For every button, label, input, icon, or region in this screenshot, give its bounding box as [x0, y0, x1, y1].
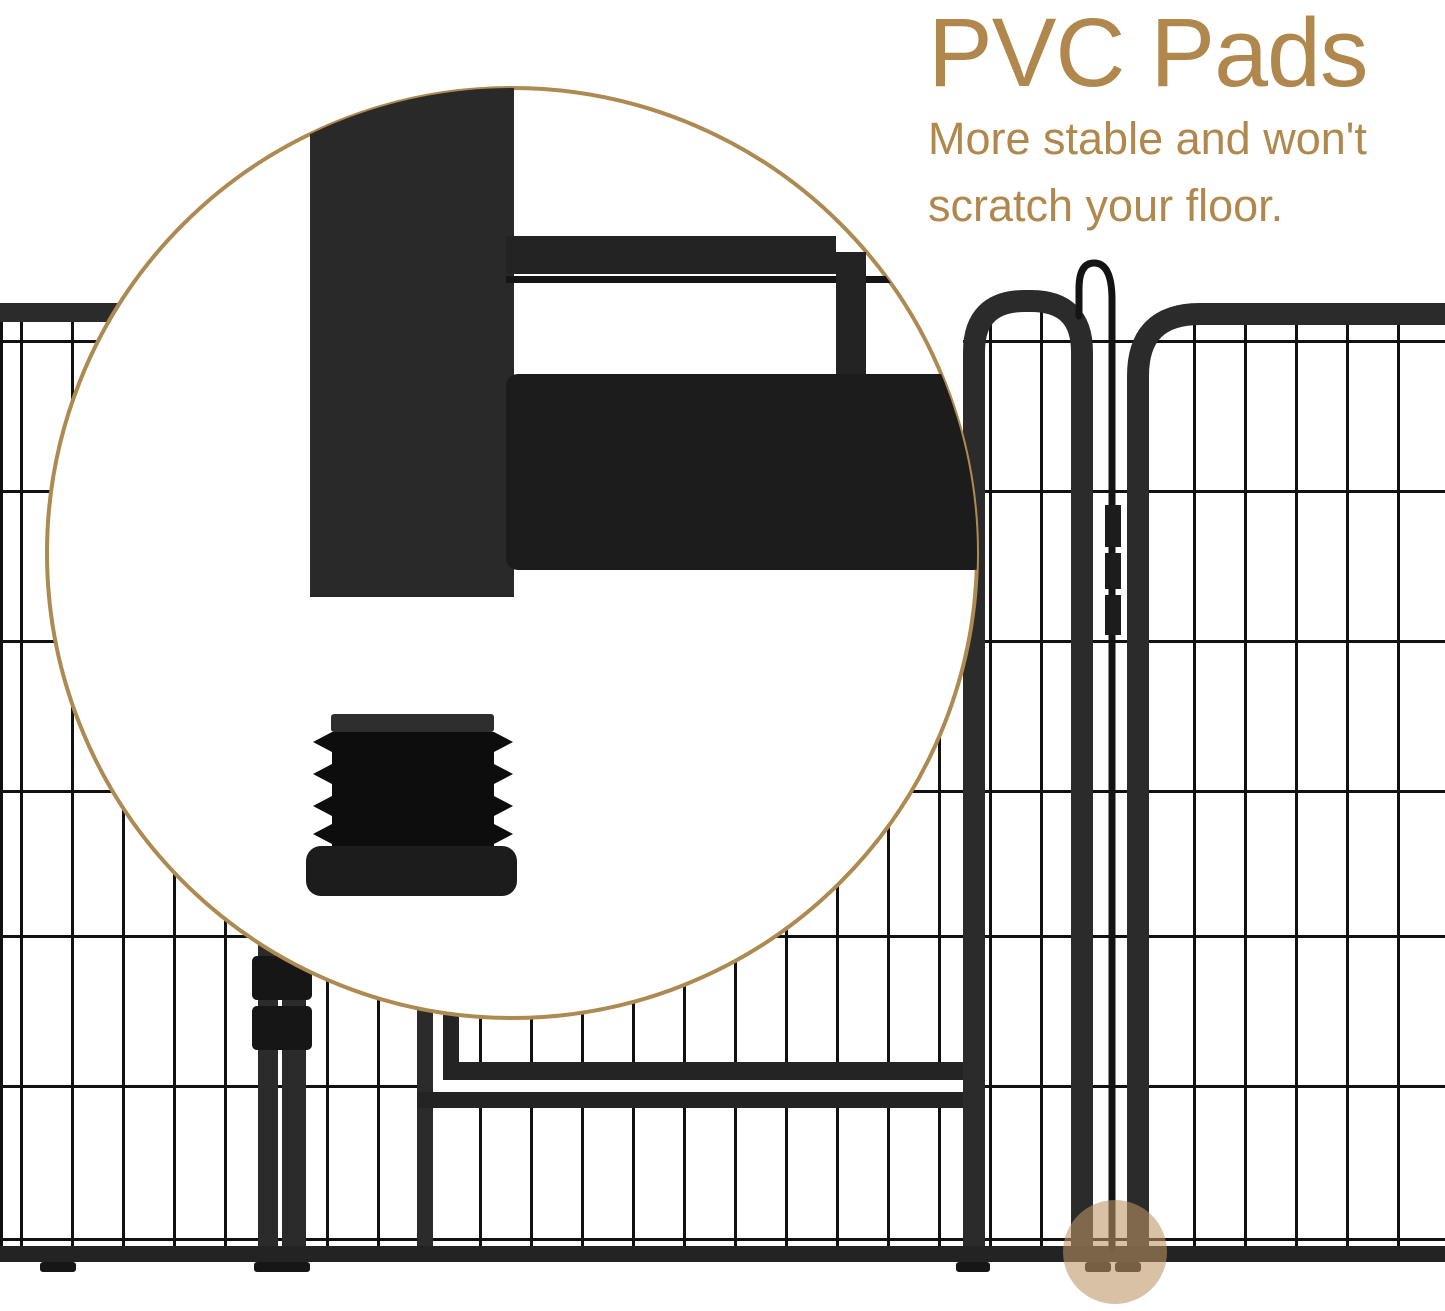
frame-tube-detail — [310, 60, 514, 597]
callout-text: PVC Pads More stable and won't scratch y… — [928, 0, 1428, 239]
magnifier-circle — [47, 60, 986, 1018]
pvc-pad-graphic — [306, 714, 517, 896]
bottom-tube-detail — [506, 374, 986, 570]
latch-knuckles — [1105, 505, 1121, 635]
product-image: PVC Pads More stable and won't scratch y… — [0, 0, 1445, 1311]
bottom-rail — [0, 1246, 1445, 1262]
highlight-circle — [1063, 1200, 1167, 1304]
callout-subtitle-line1: More stable and won't — [928, 105, 1428, 172]
callout-subtitle-line2: scratch your floor. — [928, 172, 1428, 239]
callout-title: PVC Pads — [928, 0, 1428, 105]
foot-pads — [40, 1262, 1141, 1272]
